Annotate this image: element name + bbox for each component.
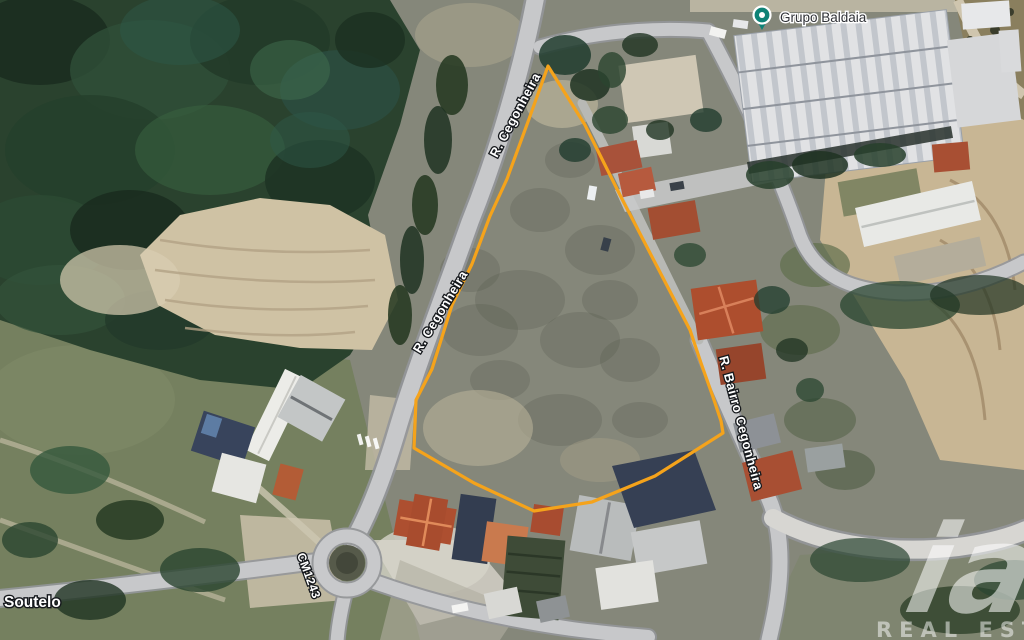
map-canvas[interactable]: R. Cegonheira R. Cegonheira R. Bairro Ce… (0, 0, 1024, 640)
roundabout (320, 536, 374, 590)
watermark-tagline: REAL ESTATE (876, 618, 1024, 640)
satellite-map: R. Cegonheira R. Cegonheira R. Bairro Ce… (0, 0, 1024, 640)
factory-building (734, 10, 964, 183)
poi-label: Grupo Baldaia (780, 10, 867, 25)
place-label-soutelo: Soutelo (4, 594, 61, 611)
